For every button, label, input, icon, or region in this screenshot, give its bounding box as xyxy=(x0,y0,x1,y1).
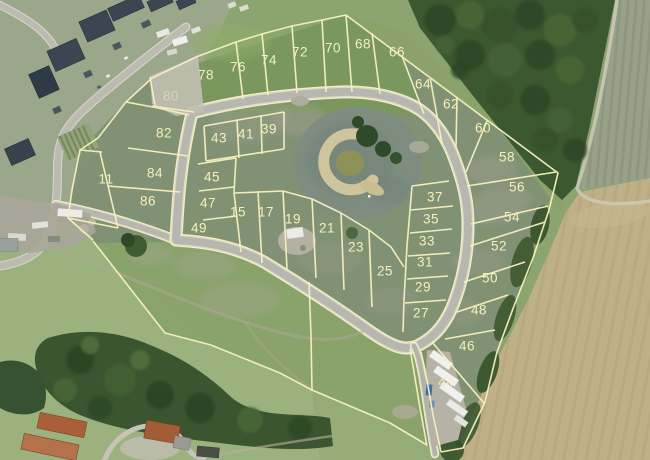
lot-label-58: 58 xyxy=(499,150,515,165)
lot-label-66: 66 xyxy=(389,45,405,60)
lot-label-25: 25 xyxy=(377,264,393,279)
lot-label-49: 49 xyxy=(191,221,207,236)
lot-label-47: 47 xyxy=(200,196,216,211)
lot-label-78: 78 xyxy=(198,68,214,83)
lot-label-72: 72 xyxy=(292,45,308,60)
lot-label-35: 35 xyxy=(423,212,439,227)
lot-label-45: 45 xyxy=(204,170,220,185)
lot-label-21: 21 xyxy=(319,221,335,236)
lot-label-46: 46 xyxy=(459,339,475,354)
lot-label-43: 43 xyxy=(211,131,227,146)
lot-label-31: 31 xyxy=(417,255,433,270)
lot-label-82: 82 xyxy=(156,126,172,141)
lot-label-41: 41 xyxy=(238,127,254,142)
house-under-construction xyxy=(278,227,316,255)
lot-label-76: 76 xyxy=(230,60,246,75)
lot-label-11: 11 xyxy=(98,172,113,187)
lot-label-44: 44 xyxy=(438,375,454,390)
lot-label-29: 29 xyxy=(415,280,431,295)
lot-label-54: 54 xyxy=(504,210,520,225)
lot-label-62: 62 xyxy=(443,97,459,112)
lot-label-37: 37 xyxy=(427,190,443,205)
retention-pond xyxy=(294,107,422,219)
lot-label-50: 50 xyxy=(482,271,498,286)
lot-label-19: 19 xyxy=(285,212,301,227)
lot-label-56: 56 xyxy=(509,180,525,195)
lot-label-17: 17 xyxy=(258,205,274,220)
lot-label-33: 33 xyxy=(419,234,435,249)
lot-label-23: 23 xyxy=(348,240,364,255)
lot-label-70: 70 xyxy=(325,41,341,56)
lot-label-74: 74 xyxy=(261,53,277,68)
lot-label-80: 80 xyxy=(163,89,179,104)
lot-label-60: 60 xyxy=(475,121,491,136)
lot-label-84: 84 xyxy=(147,166,163,181)
lot-label-15: 15 xyxy=(230,205,246,220)
lot-label-52: 52 xyxy=(491,239,507,254)
lot-label-64: 64 xyxy=(415,77,431,92)
lot-label-68: 68 xyxy=(355,37,371,52)
aerial-parcel-map[interactable]: 8078767472706866646260585654525048464482… xyxy=(0,0,650,460)
lot-label-27: 27 xyxy=(413,306,429,321)
lot-label-48: 48 xyxy=(471,303,487,318)
lot-label-86: 86 xyxy=(140,194,156,209)
map-canvas: 8078767472706866646260585654525048464482… xyxy=(0,0,650,460)
lot-label-39: 39 xyxy=(261,122,277,137)
